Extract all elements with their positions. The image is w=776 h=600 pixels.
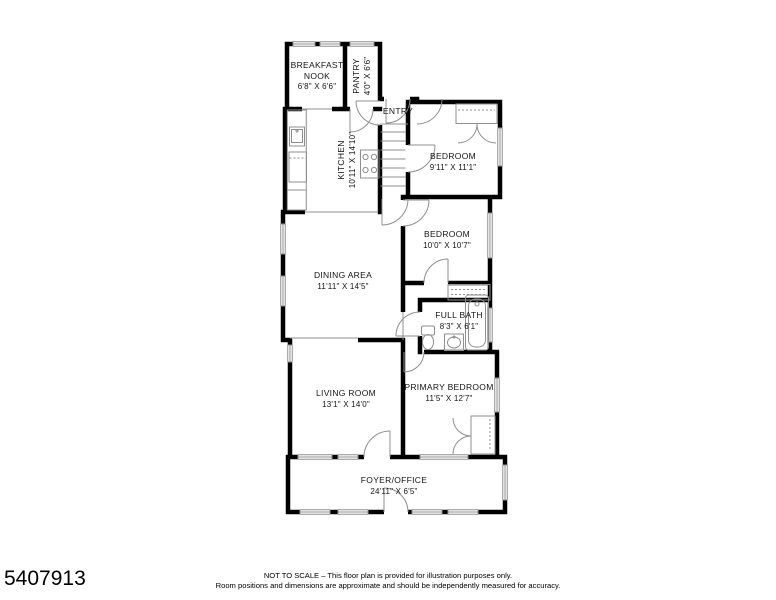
linen-closet xyxy=(448,285,490,301)
room-name: BEDROOM xyxy=(423,229,471,240)
disclaimer-line-1: NOT TO SCALE – This floor plan is provid… xyxy=(0,571,776,581)
room-dims: 8'3" X 6'1" xyxy=(435,322,483,333)
room-name: DINING AREA xyxy=(314,270,372,281)
room-name: PANTRY xyxy=(351,57,362,96)
room-name: LIVING ROOM xyxy=(316,388,376,399)
kitchen-sink-icon xyxy=(290,127,305,146)
room-label-foyer-office: FOYER/OFFICE 24'11" X 6'5" xyxy=(361,475,427,497)
room-dims: 13'1" X 14'0" xyxy=(316,400,376,411)
floor-plan xyxy=(0,0,776,600)
floor-plan-page: { "plan": { "rooms": { "breakfast_nook":… xyxy=(0,0,776,600)
room-name: ENTRY xyxy=(383,106,413,117)
disclaimer: NOT TO SCALE – This floor plan is provid… xyxy=(0,571,776,591)
bathroom-sink-icon xyxy=(445,334,464,351)
room-dims: 4'0" X 6'6" xyxy=(363,57,374,96)
room-dims: 11'11" X 14'5" xyxy=(314,282,372,293)
room-label-entry: ENTRY xyxy=(383,106,413,117)
room-name: PRIMARY BEDROOM xyxy=(404,382,493,393)
room-label-bedroom-1: BEDROOM 9'11" X 11'1" xyxy=(430,151,477,173)
refrigerator-icon xyxy=(289,152,307,182)
primary-closet xyxy=(471,416,495,454)
room-label-full-bath: FULL BATH 8'3" X 6'1" xyxy=(435,310,483,332)
room-dims: 24'11" X 6'5" xyxy=(361,487,427,498)
kitchen-counter xyxy=(287,110,306,210)
stove-icon xyxy=(361,150,380,178)
disclaimer-line-2: Room positions and dimensions are approx… xyxy=(0,581,776,591)
room-dims: 10'11" X 14'10" xyxy=(348,132,359,189)
room-label-breakfast-nook: BREAKFAST NOOK 6'8" X 6'6" xyxy=(277,60,357,93)
bedroom-closet xyxy=(456,104,497,124)
room-label-living-room: LIVING ROOM 13'1" X 14'0" xyxy=(316,388,376,410)
openings xyxy=(290,109,448,340)
room-label-pantry: PANTRY 4'0" X 6'6" xyxy=(351,57,373,96)
toilet-icon xyxy=(422,326,435,350)
room-name: BEDROOM xyxy=(430,151,477,162)
room-name: FULL BATH xyxy=(435,310,483,321)
room-dims: 11'5" X 12'7" xyxy=(404,394,493,405)
room-name: KITCHEN xyxy=(336,132,347,189)
room-label-dining-area: DINING AREA 11'11" X 14'5" xyxy=(314,270,372,292)
room-dims: 10'0" X 10'7" xyxy=(423,241,471,252)
room-label-kitchen: KITCHEN 10'11" X 14'10" xyxy=(336,132,358,189)
room-dims: 6'8" X 6'6" xyxy=(277,82,357,93)
staircase-icon xyxy=(381,132,406,186)
room-label-primary-bedroom: PRIMARY BEDROOM 11'5" X 12'7" xyxy=(404,382,493,404)
room-label-bedroom-2: BEDROOM 10'0" X 10'7" xyxy=(423,229,471,251)
room-name: BREAKFAST NOOK xyxy=(277,60,357,81)
room-name: FOYER/OFFICE xyxy=(361,475,427,486)
room-dims: 9'11" X 11'1" xyxy=(430,163,477,174)
